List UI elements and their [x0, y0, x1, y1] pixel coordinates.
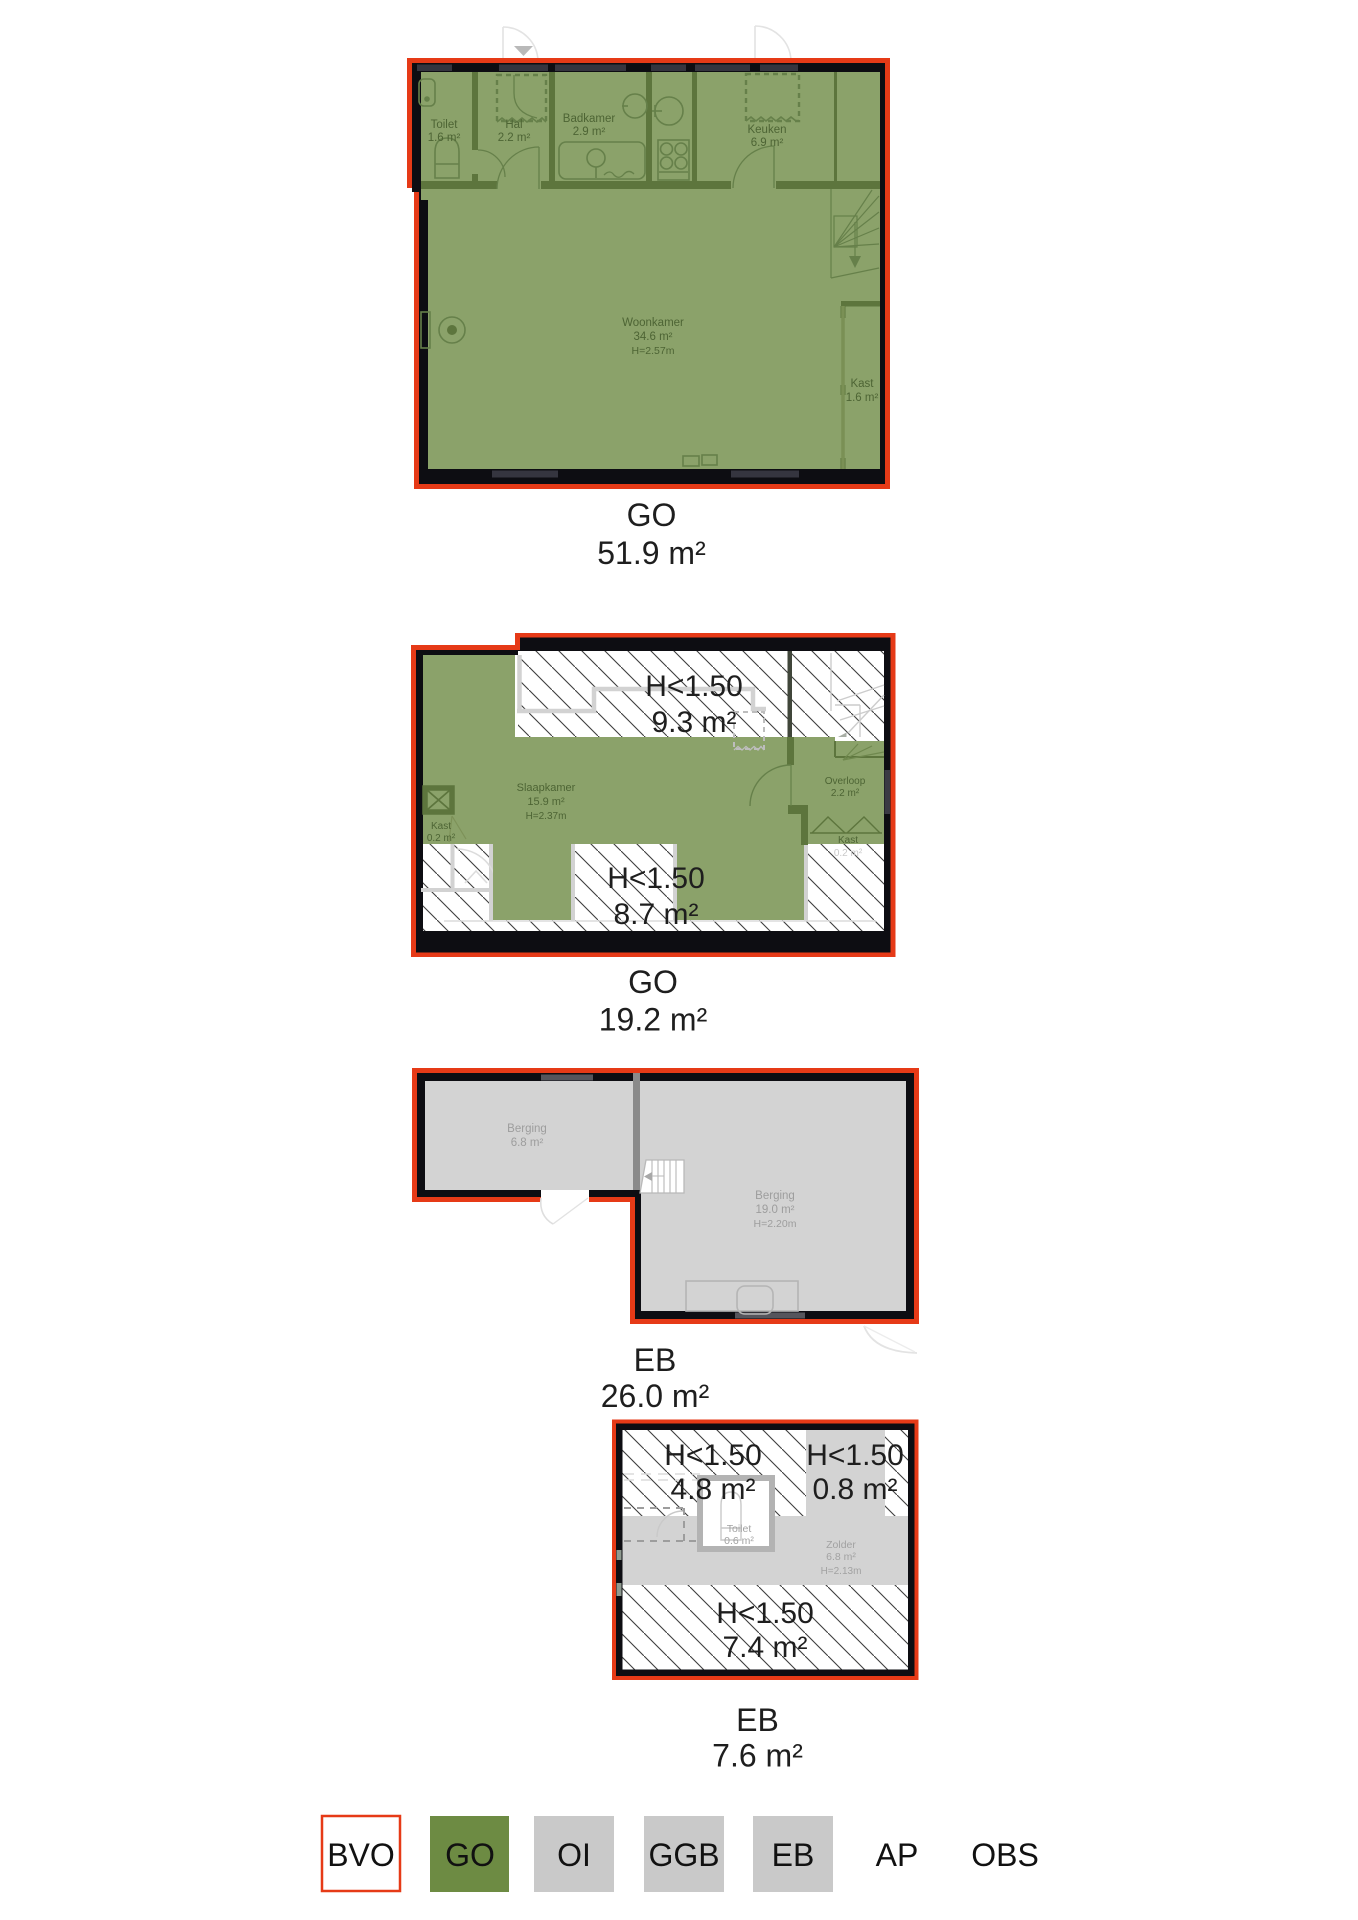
svg-text:2.2 m²: 2.2 m² — [831, 788, 860, 799]
svg-text:51.9 m²: 51.9 m² — [597, 535, 706, 571]
svg-text:Toilet: Toilet — [727, 1523, 752, 1535]
svg-text:19.2 m²: 19.2 m² — [599, 1002, 708, 1038]
svg-text:GO: GO — [627, 497, 677, 533]
svg-text:Badkamer: Badkamer — [563, 113, 616, 125]
svg-text:19.0 m²: 19.0 m² — [756, 1204, 795, 1216]
svg-text:Overloop: Overloop — [825, 776, 866, 787]
svg-text:15.9 m²: 15.9 m² — [527, 796, 565, 808]
svg-text:9.3 m²: 9.3 m² — [651, 706, 736, 739]
svg-text:GO: GO — [628, 964, 678, 1000]
svg-text:26.0 m²: 26.0 m² — [601, 1378, 710, 1414]
svg-text:Toilet: Toilet — [431, 119, 459, 131]
svg-text:0.2 m²: 0.2 m² — [427, 833, 456, 844]
svg-text:Keuken: Keuken — [747, 124, 786, 136]
svg-text:34.6 m²: 34.6 m² — [634, 331, 673, 343]
svg-text:H<1.50: H<1.50 — [806, 1439, 904, 1472]
svg-text:Hal: Hal — [505, 119, 522, 131]
svg-text:2.2 m²: 2.2 m² — [498, 132, 531, 144]
svg-text:AP: AP — [876, 1837, 919, 1873]
svg-text:H<1.50: H<1.50 — [607, 862, 705, 895]
svg-text:OBS: OBS — [971, 1837, 1039, 1873]
svg-text:EB: EB — [736, 1702, 779, 1738]
svg-text:Woonkamer: Woonkamer — [622, 317, 684, 329]
svg-text:Kast: Kast — [850, 378, 874, 390]
svg-text:7.4 m²: 7.4 m² — [722, 1631, 807, 1664]
svg-text:6.8 m²: 6.8 m² — [511, 1137, 544, 1149]
svg-text:H=2.57m: H=2.57m — [632, 345, 675, 357]
svg-text:2.9 m²: 2.9 m² — [573, 126, 606, 138]
svg-text:H=2.37m: H=2.37m — [526, 811, 567, 822]
svg-text:0.2 m²: 0.2 m² — [834, 848, 863, 859]
svg-text:Slaapkamer: Slaapkamer — [517, 782, 576, 794]
svg-text:H<1.50: H<1.50 — [716, 1597, 814, 1630]
svg-text:Zolder: Zolder — [826, 1539, 856, 1551]
svg-text:6.8 m²: 6.8 m² — [826, 1551, 856, 1563]
svg-text:Kast: Kast — [431, 821, 451, 832]
svg-text:Kast: Kast — [838, 835, 858, 846]
svg-text:Berging: Berging — [755, 1190, 795, 1202]
svg-text:6.9 m²: 6.9 m² — [751, 137, 784, 149]
svg-text:4.8 m²: 4.8 m² — [670, 1473, 755, 1506]
svg-text:GGB: GGB — [648, 1837, 719, 1873]
svg-text:H<1.50: H<1.50 — [645, 670, 743, 703]
svg-text:H<1.50: H<1.50 — [664, 1439, 762, 1472]
svg-text:1.6 m²: 1.6 m² — [846, 392, 879, 404]
svg-text:EB: EB — [634, 1342, 677, 1378]
svg-text:0.6 m²: 0.6 m² — [724, 1535, 754, 1547]
svg-text:7.6 m²: 7.6 m² — [712, 1738, 803, 1774]
svg-text:EB: EB — [772, 1837, 815, 1873]
svg-text:0.8 m²: 0.8 m² — [812, 1473, 897, 1506]
svg-text:OI: OI — [557, 1837, 591, 1873]
svg-text:H=2.20m: H=2.20m — [754, 1218, 797, 1230]
svg-text:1.6 m²: 1.6 m² — [428, 132, 461, 144]
svg-text:GO: GO — [445, 1837, 495, 1873]
svg-text:8.7 m²: 8.7 m² — [613, 898, 698, 931]
svg-text:Berging: Berging — [507, 1123, 547, 1135]
svg-text:BVO: BVO — [327, 1837, 395, 1873]
svg-text:H=2.13m: H=2.13m — [821, 1566, 862, 1577]
